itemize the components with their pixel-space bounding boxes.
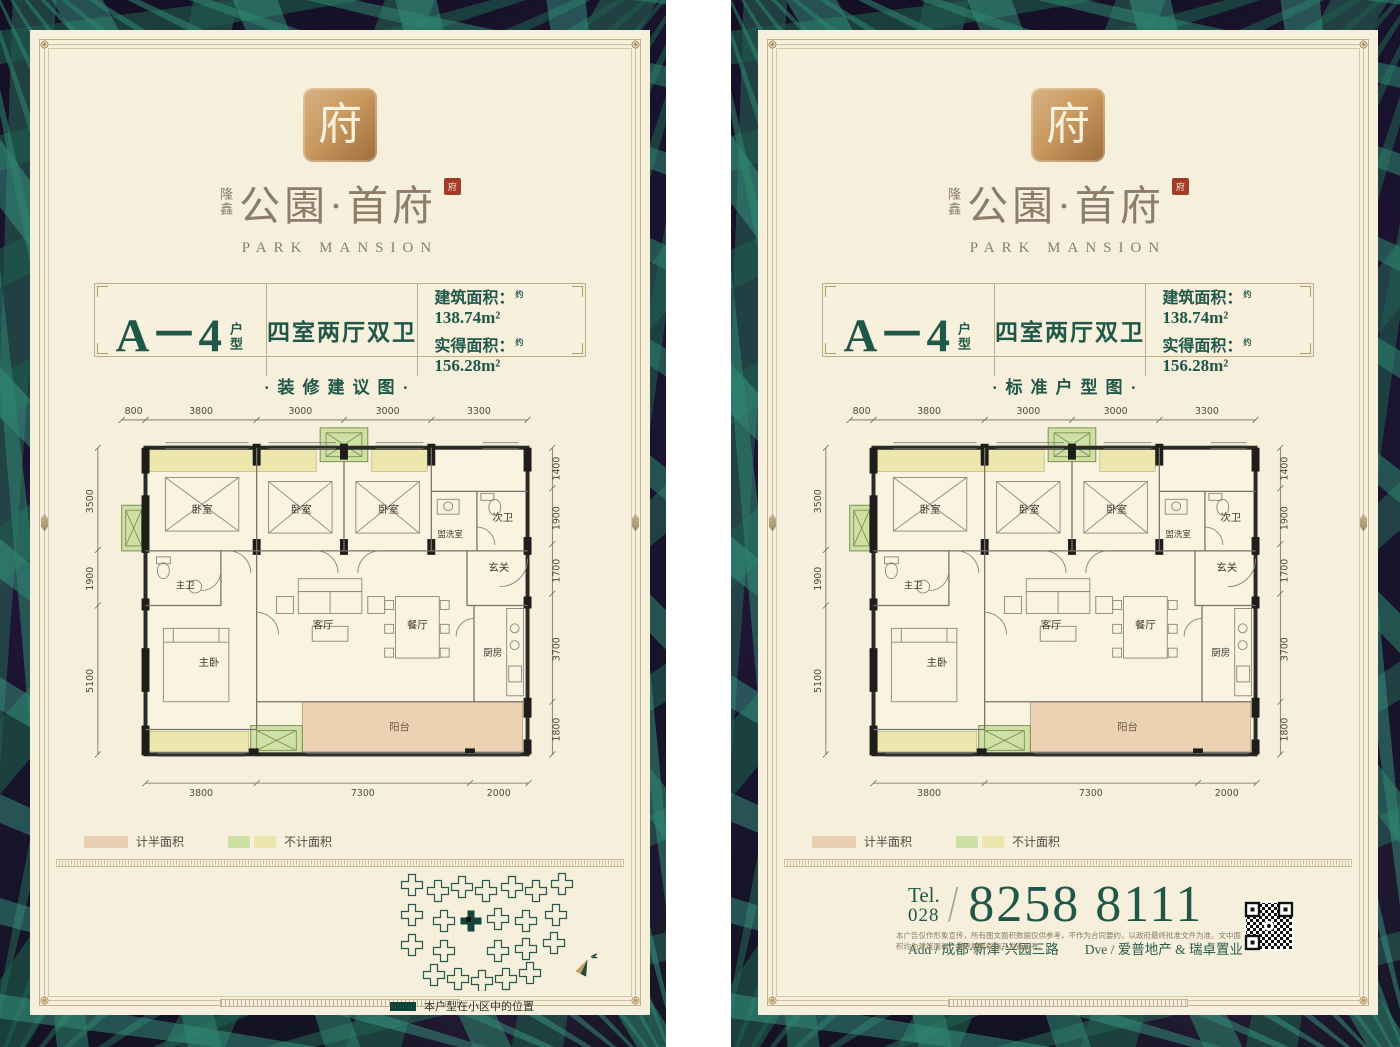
header-corner-flourish: [1300, 286, 1311, 297]
legend-excluded-area: 不计面积: [228, 833, 332, 850]
svg-text:餐厅: 餐厅: [407, 618, 428, 631]
unit-code: A－4: [116, 296, 223, 365]
svg-text:3000: 3000: [1016, 406, 1040, 417]
edge-medallion-icon: [41, 514, 48, 532]
gold-seal-icon: 府: [1031, 88, 1105, 162]
contact-block: Tel. 028 / 8258 8111 Add / 成都·新津·兴园三路 Dv…: [908, 875, 1243, 958]
unit-code: A－4: [844, 296, 951, 365]
tel-area-code: 028: [908, 906, 940, 926]
svg-text:3700: 3700: [551, 637, 562, 661]
svg-text:主卫: 主卫: [904, 580, 923, 592]
svg-text:800: 800: [125, 406, 143, 417]
excluded-green-swatch: [228, 836, 250, 848]
corner-rosette-icon: [40, 40, 49, 49]
svg-text:3500: 3500: [813, 489, 824, 513]
svg-text:3800: 3800: [917, 406, 941, 417]
svg-text:1400: 1400: [1279, 457, 1290, 481]
seal-glyph: 府: [1046, 100, 1090, 149]
svg-text:厨房: 厨房: [483, 647, 502, 659]
svg-text:1900: 1900: [1279, 506, 1290, 530]
svg-text:3000: 3000: [376, 406, 400, 417]
plan-subtitle: ·装修建议图·: [52, 373, 628, 398]
corner-rosette-icon: [768, 996, 777, 1005]
svg-text:7300: 7300: [351, 788, 375, 799]
corner-rosette-icon: [631, 40, 640, 49]
corner-rosette-icon: [1359, 996, 1368, 1005]
brand-name-small: 隆鑫: [219, 187, 232, 217]
scallop-divider: [784, 859, 1352, 867]
disclaimer: 本广告仅作形象宣传，所有图文面积数据仅供参考，不作为合同要约，以政府最终批准文件…: [896, 930, 1244, 952]
svg-text:主卫: 主卫: [176, 580, 195, 592]
svg-text:主卧: 主卧: [199, 656, 220, 669]
svg-text:主卧: 主卧: [927, 656, 948, 669]
excluded-yellow-swatch: [254, 836, 276, 848]
svg-text:3000: 3000: [288, 406, 312, 417]
poster-standard-plan: 府 隆鑫 公園·首府 府 PARK MANSION A－4 户型 四室两厅双卫 …: [758, 30, 1378, 1015]
svg-text:餐厅: 餐厅: [1135, 618, 1156, 631]
half-area-swatch: [812, 836, 856, 848]
svg-text:卧室: 卧室: [920, 503, 941, 516]
svg-text:3800: 3800: [189, 788, 213, 799]
svg-text:5100: 5100: [85, 669, 96, 693]
actual-area-row: 实得面积：约156.28m²: [1162, 332, 1313, 376]
brand-name: 公園·首府: [239, 172, 437, 232]
plan-subtitle: ·标准户型图·: [780, 373, 1356, 398]
red-seal-icon: 府: [1172, 178, 1189, 195]
header-corner-flourish: [825, 286, 836, 297]
site-plan: 本户型在小区中的位置: [386, 871, 602, 1014]
svg-text:1800: 1800: [1279, 718, 1290, 742]
edge-medallion-icon: [632, 514, 639, 532]
header-corner-flourish: [97, 286, 108, 297]
legend-excluded-area: 不计面积: [956, 833, 1060, 850]
svg-text:阳台: 阳台: [1117, 721, 1138, 734]
header-corner-flourish: [825, 343, 836, 354]
location-swatch: [390, 1002, 416, 1011]
svg-text:次卫: 次卫: [492, 511, 513, 524]
floor-plan: 800 3800 3000 3000 3300 3500 1900 5100 1…: [82, 402, 598, 807]
gold-seal-icon: 府: [303, 88, 377, 162]
scallop-divider: [56, 859, 624, 867]
svg-text:3300: 3300: [1195, 406, 1219, 417]
header-corner-flourish: [97, 343, 108, 354]
svg-text:3000: 3000: [1104, 406, 1128, 417]
unit-header: A－4 户型 四室两厅双卫 建筑面积：约138.74m² 实得面积：约156.2…: [822, 283, 1314, 357]
actual-area-row: 实得面积：约156.28m²: [434, 332, 585, 376]
center-white-gap: [666, 0, 731, 1047]
corner-rosette-icon: [40, 996, 49, 1005]
brand-name-english: PARK MANSION: [52, 240, 628, 257]
svg-text:卧室: 卧室: [1106, 503, 1127, 516]
svg-text:卧室: 卧室: [378, 503, 399, 516]
svg-text:2000: 2000: [1215, 788, 1239, 799]
qr-code: [1244, 901, 1294, 951]
brand-logo: 府 隆鑫 公園·首府 府 PARK MANSION: [780, 88, 1356, 257]
excluded-green-swatch: [956, 836, 978, 848]
svg-text:卧室: 卧室: [291, 503, 312, 516]
edge-medallion-icon: [769, 514, 776, 532]
svg-text:客厅: 客厅: [1041, 618, 1062, 631]
svg-text:3800: 3800: [189, 406, 213, 417]
brand-name-english: PARK MANSION: [780, 240, 1356, 257]
svg-text:1700: 1700: [551, 559, 562, 583]
tel-label: Tel.: [908, 884, 940, 906]
unit-layout: 四室两厅双卫: [267, 284, 419, 376]
half-area-swatch: [84, 836, 128, 848]
unit-code-suffix: 户型: [954, 322, 973, 352]
brand-logo: 府 隆鑫 公園·首府 府 PARK MANSION: [52, 88, 628, 257]
svg-text:盥洗室: 盥洗室: [438, 529, 463, 539]
svg-text:3800: 3800: [917, 788, 941, 799]
corner-rosette-icon: [1359, 40, 1368, 49]
svg-text:厨房: 厨房: [1211, 647, 1230, 659]
svg-text:1400: 1400: [551, 457, 562, 481]
svg-text:玄关: 玄关: [488, 561, 509, 574]
svg-text:1700: 1700: [1279, 559, 1290, 583]
unit-code-suffix: 户型: [226, 322, 245, 352]
edge-medallion-icon: [1360, 514, 1367, 532]
svg-text:3500: 3500: [85, 489, 96, 513]
floor-plan: 800 3800 3000 3000 3300 3500 1900 5100 1…: [810, 402, 1326, 807]
svg-text:5100: 5100: [813, 669, 824, 693]
svg-text:卧室: 卧室: [1019, 503, 1040, 516]
tel-number: 8258 8111: [968, 875, 1203, 934]
svg-text:3700: 3700: [1279, 637, 1290, 661]
svg-text:2000: 2000: [487, 788, 511, 799]
svg-text:1900: 1900: [813, 567, 824, 591]
corner-rosette-icon: [768, 40, 777, 49]
plan-legend: 计半面积 不计面积: [812, 833, 1356, 850]
svg-text:1800: 1800: [551, 718, 562, 742]
svg-text:客厅: 客厅: [313, 618, 334, 631]
tel-slash: /: [948, 875, 958, 934]
header-corner-flourish: [572, 286, 583, 297]
brand-name-small: 隆鑫: [947, 187, 960, 217]
compass-icon: [575, 949, 598, 978]
excluded-yellow-swatch: [982, 836, 1004, 848]
svg-text:卧室: 卧室: [192, 503, 213, 516]
svg-text:阳台: 阳台: [389, 721, 410, 734]
seal-glyph: 府: [318, 100, 362, 149]
built-area-row: 建筑面积：约138.74m²: [1162, 284, 1313, 328]
svg-text:1900: 1900: [551, 506, 562, 530]
site-plan-caption: 本户型在小区中的位置: [390, 998, 602, 1014]
header-corner-flourish: [1300, 343, 1311, 354]
legend-half-area: 计半面积: [812, 833, 912, 850]
poster-decorated-plan: 府 隆鑫 公園·首府 府 PARK MANSION A－4 户型 四室两厅双卫 …: [30, 30, 650, 1015]
svg-text:7300: 7300: [1079, 788, 1103, 799]
svg-text:盥洗室: 盥洗室: [1166, 529, 1191, 539]
svg-text:次卫: 次卫: [1220, 511, 1241, 524]
built-area-row: 建筑面积：约138.74m²: [434, 284, 585, 328]
bottom-ribbed-ornament: [948, 999, 1188, 1007]
legend-half-area: 计半面积: [84, 833, 184, 850]
svg-text:玄关: 玄关: [1216, 561, 1237, 574]
unit-header: A－4 户型 四室两厅双卫 建筑面积：约138.74m² 实得面积：约156.2…: [94, 283, 586, 357]
svg-text:800: 800: [853, 406, 871, 417]
red-seal-icon: 府: [444, 178, 461, 195]
unit-layout: 四室两厅双卫: [995, 284, 1147, 376]
brand-name: 公園·首府: [967, 172, 1165, 232]
plan-legend: 计半面积 不计面积: [84, 833, 628, 850]
svg-text:1900: 1900: [85, 567, 96, 591]
corner-rosette-icon: [631, 996, 640, 1005]
header-corner-flourish: [572, 343, 583, 354]
svg-text:3300: 3300: [467, 406, 491, 417]
